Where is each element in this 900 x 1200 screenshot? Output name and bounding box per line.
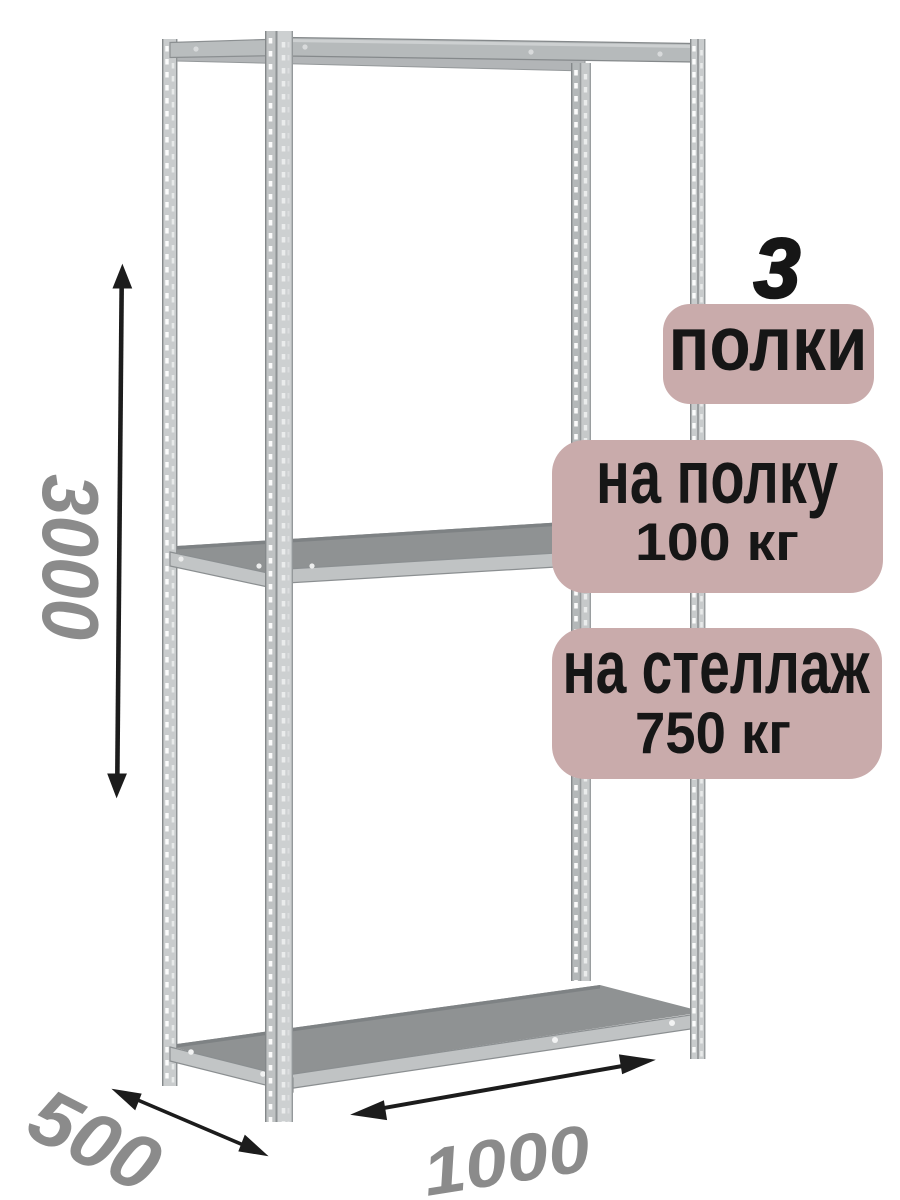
svg-text:полки: полки (669, 301, 868, 387)
svg-text:на стеллаж: на стеллаж (563, 625, 871, 709)
svg-text:100 кг: 100 кг (635, 513, 799, 572)
svg-text:3000: 3000 (26, 474, 115, 640)
svg-text:на полку: на полку (596, 435, 838, 519)
svg-text:750 кг: 750 кг (635, 701, 791, 766)
